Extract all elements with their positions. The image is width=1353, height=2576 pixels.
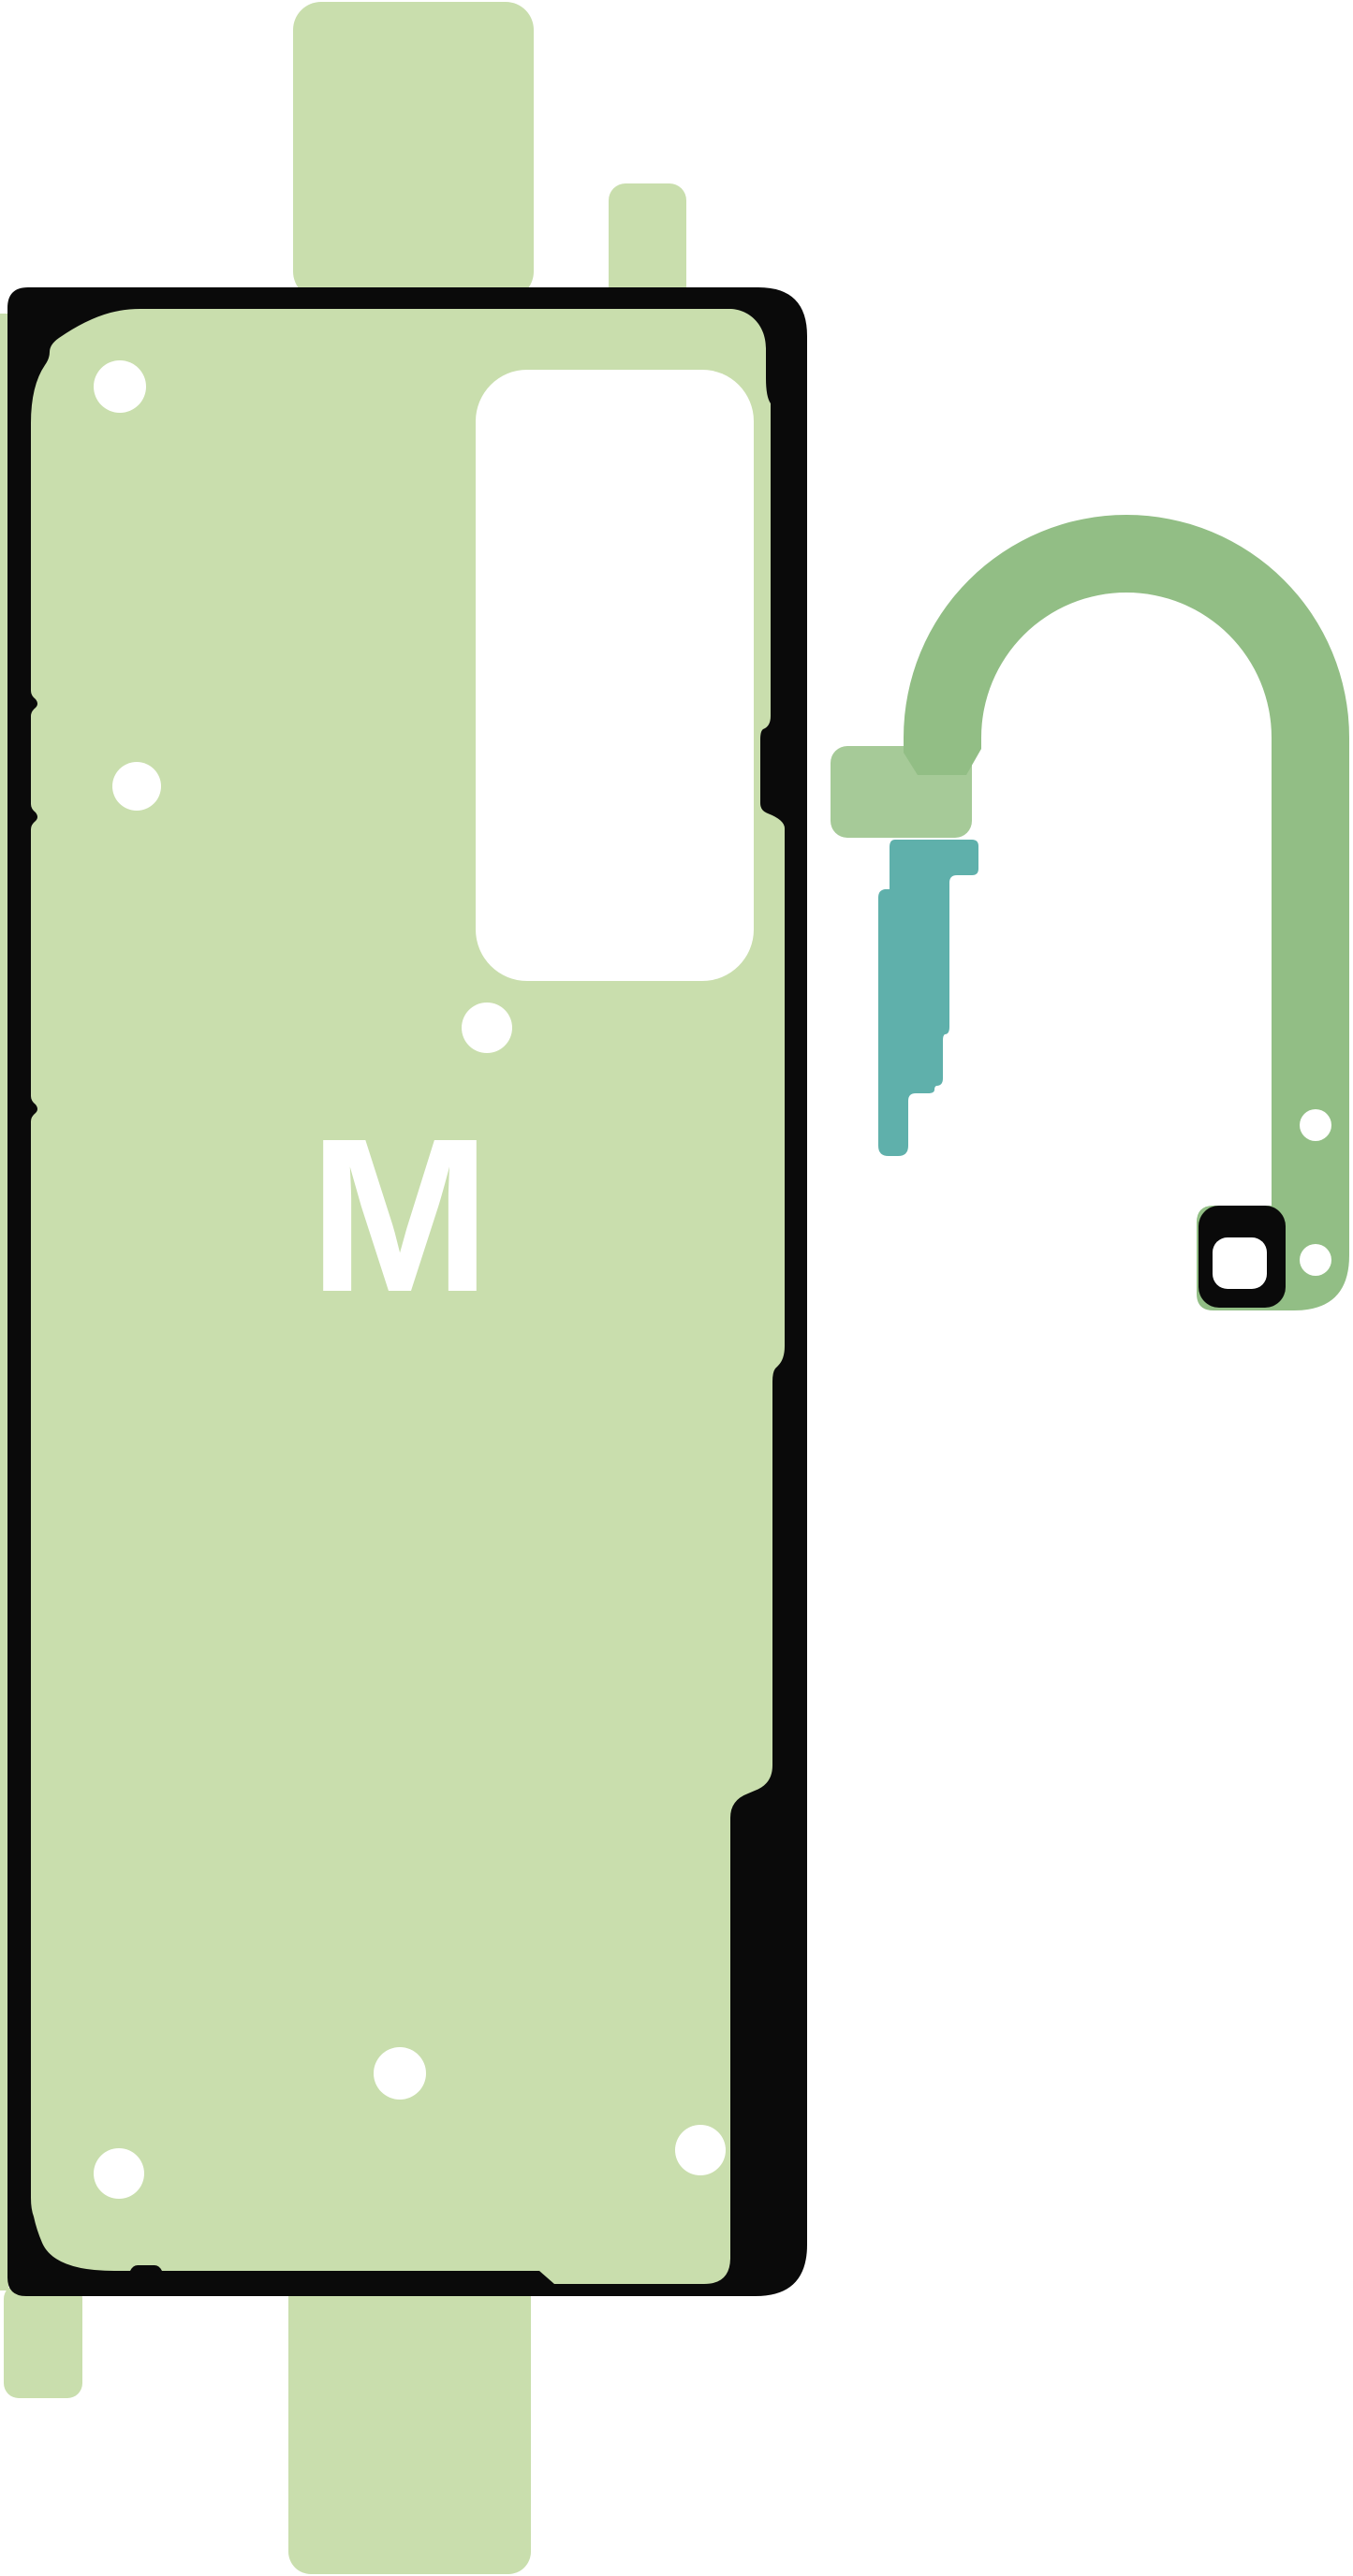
top-carrier-strip xyxy=(293,2,534,300)
adhesive-kit-product-image: M xyxy=(0,0,1353,2576)
alignment-hole-bottom-left xyxy=(94,2148,144,2199)
left-edge-strip xyxy=(0,314,8,2291)
sheet-marking-letter: M xyxy=(309,1092,492,1338)
camera-ring-hole xyxy=(1213,1237,1267,1289)
alignment-hole-top-left xyxy=(94,360,146,413)
hook-tube xyxy=(1272,739,1349,1236)
top-small-carrier-strip xyxy=(609,183,686,305)
alignment-hole-mid-left xyxy=(112,762,161,811)
bottom-carrier-strip xyxy=(288,2275,531,2574)
left-edge-tab xyxy=(4,2284,82,2398)
camera-cutout xyxy=(476,370,754,981)
alignment-hole-bottom-center xyxy=(374,2047,426,2100)
alignment-hole-bottom-right xyxy=(675,2125,726,2175)
hook-hole-lower xyxy=(1300,1244,1331,1276)
hook-hole-upper xyxy=(1300,1109,1331,1141)
alignment-hole-below-cutout xyxy=(462,1003,512,1053)
